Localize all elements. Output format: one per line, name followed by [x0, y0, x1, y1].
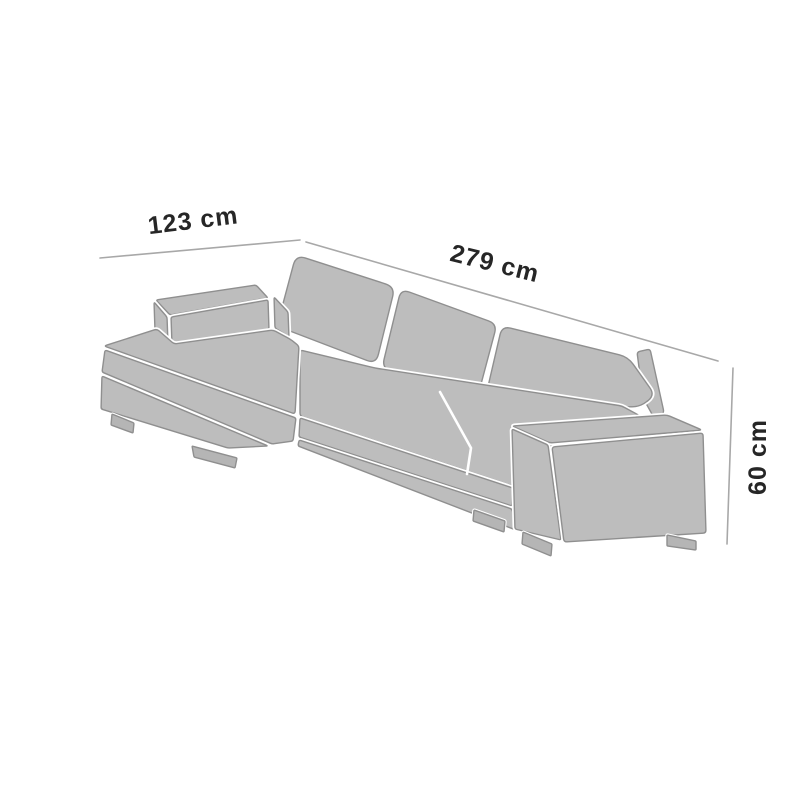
armrest-foot-right [667, 535, 696, 550]
sofa-illustration [101, 257, 706, 555]
diagram-canvas: 123 cm 279 cm 60 cm [0, 0, 800, 800]
armrest-front-face [552, 433, 706, 542]
depth-dimension-line [100, 240, 300, 258]
depth-dimension-label: 123 cm [146, 201, 240, 240]
width-dimension-label: 279 cm [447, 239, 542, 288]
sofa-dimension-diagram: 123 cm 279 cm 60 cm [0, 0, 800, 800]
height-dimension-line [727, 368, 733, 544]
armrest-front-face-face [552, 433, 706, 542]
height-dimension-label: 60 cm [744, 419, 772, 495]
